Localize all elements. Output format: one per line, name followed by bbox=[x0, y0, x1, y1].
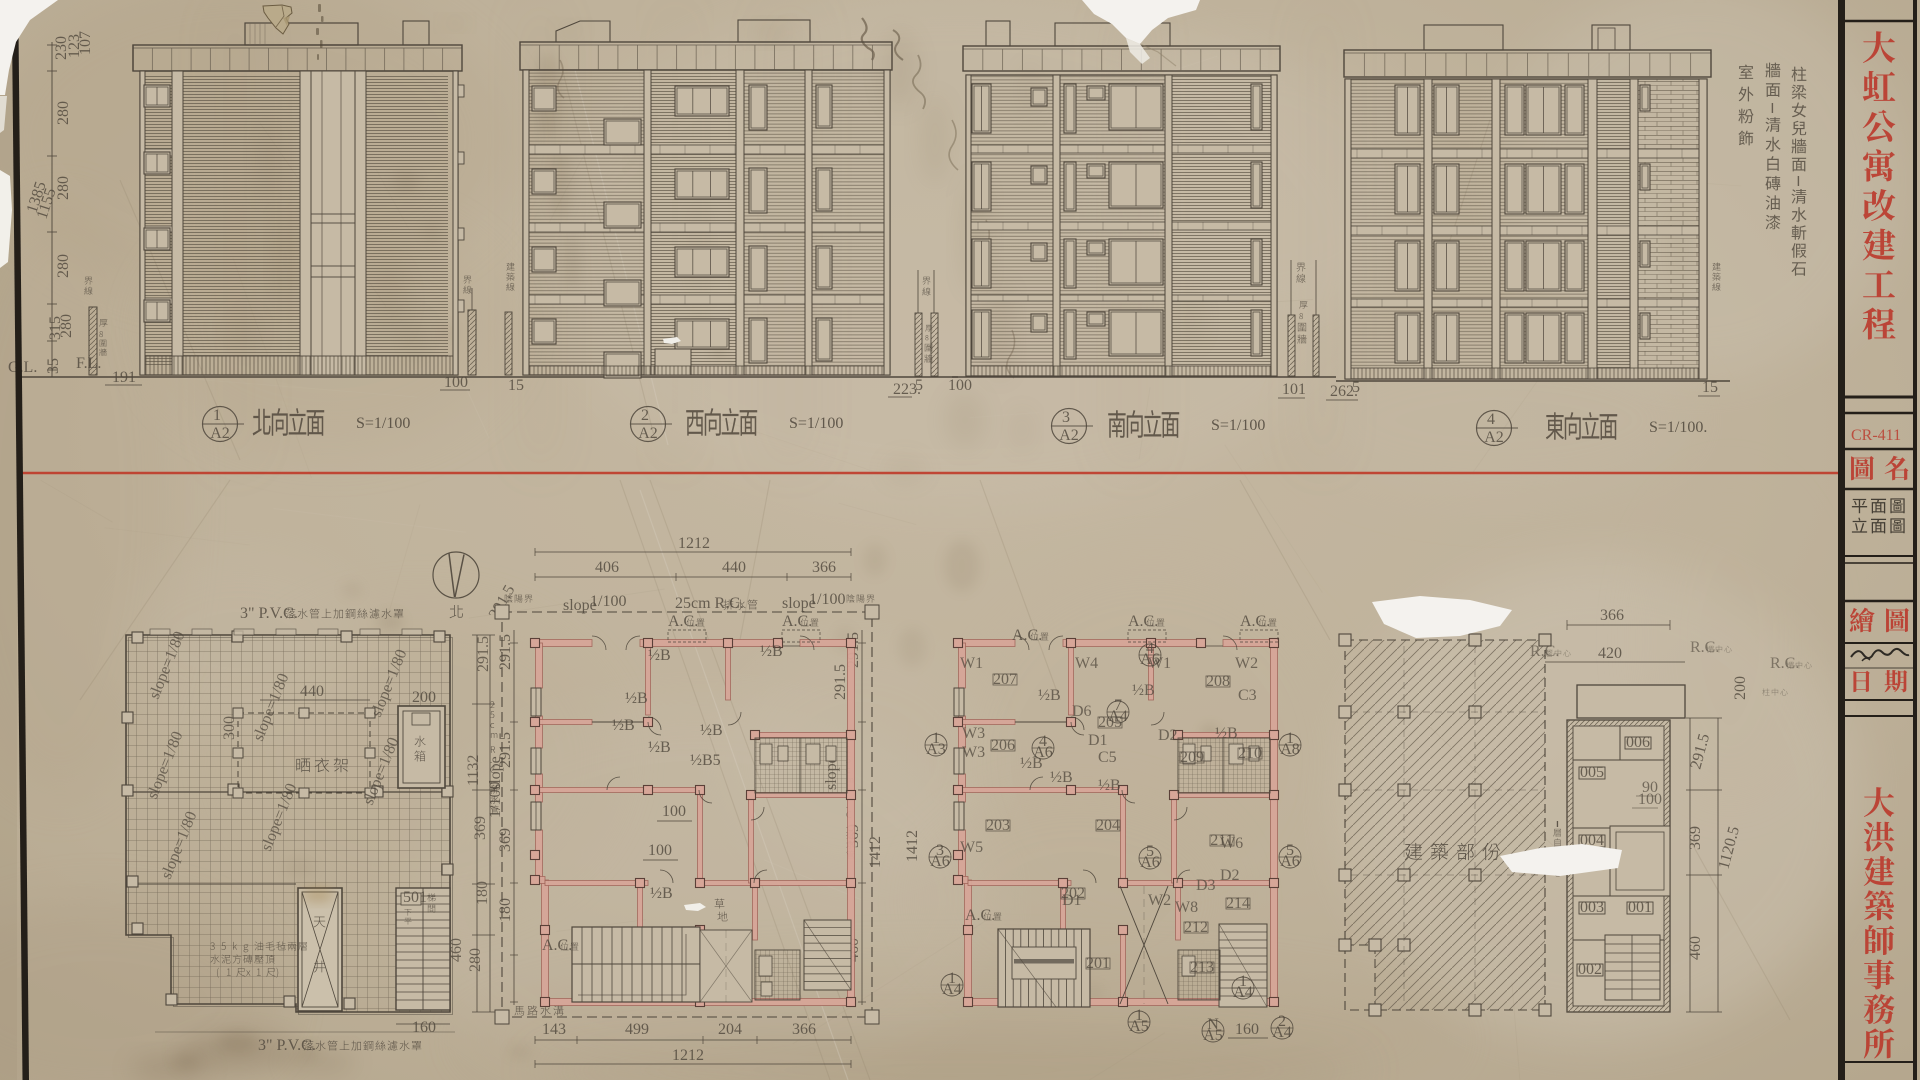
svg-text:1: 1 bbox=[213, 407, 221, 424]
svg-text:280: 280 bbox=[467, 948, 484, 972]
svg-text:180: 180 bbox=[497, 898, 514, 922]
svg-text:143: 143 bbox=[542, 1021, 566, 1038]
svg-text:006: 006 bbox=[1626, 734, 1650, 751]
svg-text:A2: A2 bbox=[1059, 427, 1079, 444]
svg-text:100: 100 bbox=[444, 374, 468, 391]
svg-text:107: 107 bbox=[77, 31, 94, 55]
svg-text:½B5: ½B5 bbox=[690, 752, 721, 769]
svg-text:D1: D1 bbox=[1062, 892, 1082, 909]
svg-text:A2: A2 bbox=[638, 425, 658, 442]
svg-text:200: 200 bbox=[1732, 676, 1749, 700]
svg-text:½B: ½B bbox=[1050, 769, 1073, 786]
svg-text:½B: ½B bbox=[648, 739, 671, 756]
svg-text:214: 214 bbox=[1226, 895, 1250, 912]
svg-text:291.5: 291.5 bbox=[497, 634, 514, 670]
svg-text:1212: 1212 bbox=[672, 1047, 704, 1064]
svg-text:W2: W2 bbox=[1235, 655, 1258, 672]
svg-text:420: 420 bbox=[1598, 645, 1622, 662]
svg-text:D2: D2 bbox=[1220, 867, 1240, 884]
svg-text:½B: ½B bbox=[1132, 682, 1155, 699]
svg-text:½B: ½B bbox=[650, 885, 673, 902]
svg-text:A3: A3 bbox=[926, 741, 946, 758]
svg-text:280: 280 bbox=[55, 254, 72, 278]
svg-text:1412: 1412 bbox=[867, 836, 884, 868]
svg-text:280: 280 bbox=[58, 314, 75, 338]
svg-text:207: 207 bbox=[993, 671, 1017, 688]
svg-text:CR-411: CR-411 bbox=[1851, 427, 1901, 444]
svg-text:A.C.: A.C. bbox=[782, 613, 812, 630]
svg-text:C3: C3 bbox=[1238, 687, 1257, 704]
svg-text:366: 366 bbox=[792, 1021, 816, 1038]
svg-text:A5: A5 bbox=[1129, 1018, 1149, 1035]
svg-text:½B: ½B bbox=[1038, 687, 1061, 704]
svg-text:A.C.: A.C. bbox=[1240, 613, 1270, 630]
svg-text:203: 203 bbox=[986, 817, 1010, 834]
svg-text:G.L.: G.L. bbox=[8, 359, 37, 376]
svg-text:180: 180 bbox=[474, 881, 491, 905]
svg-text:R.C.: R.C. bbox=[1690, 639, 1719, 656]
svg-text:101: 101 bbox=[1282, 381, 1306, 398]
svg-text:A.C.: A.C. bbox=[668, 613, 698, 630]
svg-text:D3: D3 bbox=[1196, 877, 1216, 894]
svg-text:501: 501 bbox=[403, 889, 427, 906]
svg-text:201: 201 bbox=[1086, 955, 1110, 972]
svg-text:W1: W1 bbox=[1148, 655, 1171, 672]
svg-text:A8: A8 bbox=[1280, 741, 1300, 758]
svg-text:W8: W8 bbox=[1175, 899, 1198, 916]
svg-text:1212: 1212 bbox=[678, 535, 710, 552]
svg-text:R.C.: R.C. bbox=[1770, 655, 1799, 672]
svg-text:A.C.: A.C. bbox=[542, 937, 572, 954]
svg-text:369: 369 bbox=[497, 828, 514, 852]
svg-text:213: 213 bbox=[1190, 959, 1214, 976]
svg-text:C5: C5 bbox=[1098, 749, 1117, 766]
svg-text:406: 406 bbox=[595, 559, 619, 576]
svg-text:3: 3 bbox=[1062, 409, 1070, 426]
svg-text:291.5: 291.5 bbox=[475, 636, 492, 672]
svg-text:003: 003 bbox=[1580, 899, 1604, 916]
svg-text:440: 440 bbox=[300, 683, 324, 700]
svg-text:369: 369 bbox=[472, 816, 489, 840]
svg-text:160: 160 bbox=[1235, 1021, 1259, 1038]
svg-text:5: 5 bbox=[915, 377, 923, 394]
svg-text:W5: W5 bbox=[960, 839, 983, 856]
svg-text:W2: W2 bbox=[1148, 892, 1171, 909]
svg-text:1132: 1132 bbox=[465, 755, 482, 786]
svg-text:A.C.: A.C. bbox=[965, 907, 995, 924]
svg-text:A4: A4 bbox=[1233, 984, 1253, 1001]
svg-text:W3: W3 bbox=[962, 725, 985, 742]
svg-text:A4: A4 bbox=[1108, 708, 1128, 725]
svg-text:W3: W3 bbox=[962, 744, 985, 761]
svg-text:A6: A6 bbox=[1280, 853, 1300, 870]
svg-text:160: 160 bbox=[412, 1019, 436, 1036]
svg-text:½B: ½B bbox=[648, 647, 671, 664]
svg-text:D1: D1 bbox=[1088, 732, 1108, 749]
svg-text:369: 369 bbox=[1687, 826, 1704, 850]
svg-text:½B: ½B bbox=[1020, 755, 1043, 772]
svg-text:300: 300 bbox=[221, 716, 238, 740]
svg-text:200: 200 bbox=[412, 689, 436, 706]
svg-text:W6: W6 bbox=[1220, 835, 1243, 852]
svg-text:½B: ½B bbox=[625, 690, 648, 707]
svg-text:100: 100 bbox=[1638, 791, 1662, 808]
svg-text:A.C.: A.C. bbox=[1128, 613, 1158, 630]
svg-text:366: 366 bbox=[812, 559, 836, 576]
svg-text:½B: ½B bbox=[700, 722, 723, 739]
svg-text:4: 4 bbox=[1487, 411, 1495, 428]
svg-text:15: 15 bbox=[508, 377, 524, 394]
svg-text:212: 212 bbox=[1184, 919, 1208, 936]
svg-text:½B: ½B bbox=[612, 717, 635, 734]
svg-text:204: 204 bbox=[718, 1021, 742, 1038]
svg-text:D6: D6 bbox=[1072, 703, 1092, 720]
svg-text:3" P.V.C.: 3" P.V.C. bbox=[240, 605, 298, 622]
svg-text:204: 204 bbox=[1096, 817, 1120, 834]
svg-text:460: 460 bbox=[1687, 936, 1704, 960]
svg-text:S=1/100: S=1/100 bbox=[356, 415, 410, 432]
svg-text:35: 35 bbox=[45, 358, 62, 374]
svg-text:S=1/100.: S=1/100. bbox=[1649, 419, 1707, 436]
svg-text:A2: A2 bbox=[1484, 429, 1504, 446]
svg-text:100: 100 bbox=[662, 803, 686, 820]
svg-text:100: 100 bbox=[648, 842, 672, 859]
svg-text:005: 005 bbox=[1580, 764, 1604, 781]
svg-text:W1: W1 bbox=[960, 655, 983, 672]
svg-text:440: 440 bbox=[722, 559, 746, 576]
svg-text:A4: A4 bbox=[942, 981, 962, 998]
svg-text:S=1/100: S=1/100 bbox=[789, 415, 843, 432]
svg-text:100: 100 bbox=[948, 377, 972, 394]
svg-text:191: 191 bbox=[112, 369, 136, 386]
svg-text:291.5: 291.5 bbox=[832, 664, 849, 700]
svg-text:1/100: 1/100 bbox=[809, 591, 845, 608]
svg-text:A5: A5 bbox=[1203, 1027, 1223, 1044]
svg-text:D2: D2 bbox=[1158, 727, 1178, 744]
svg-text:25cm R.C.: 25cm R.C. bbox=[675, 595, 744, 612]
svg-text:F.L.: F.L. bbox=[76, 355, 101, 372]
svg-text:002: 002 bbox=[1578, 961, 1602, 978]
svg-text:001: 001 bbox=[1628, 899, 1652, 916]
svg-text:1/100: 1/100 bbox=[487, 782, 504, 818]
svg-text:A6: A6 bbox=[1140, 854, 1160, 871]
svg-text:209: 209 bbox=[1180, 749, 1204, 766]
svg-text:1412: 1412 bbox=[904, 830, 921, 862]
svg-text:366: 366 bbox=[1600, 607, 1624, 624]
svg-text:½B: ½B bbox=[1215, 725, 1238, 742]
svg-text:460: 460 bbox=[448, 938, 465, 962]
svg-text:A4: A4 bbox=[1272, 1024, 1292, 1041]
svg-text:A6: A6 bbox=[930, 853, 950, 870]
svg-text:½B: ½B bbox=[1098, 777, 1121, 794]
svg-text:A.C.: A.C. bbox=[1012, 627, 1042, 644]
svg-text:206: 206 bbox=[991, 737, 1015, 754]
svg-text:A2: A2 bbox=[210, 425, 230, 442]
svg-text:S=1/100: S=1/100 bbox=[1211, 417, 1265, 434]
svg-text:499: 499 bbox=[625, 1021, 649, 1038]
svg-text:½B: ½B bbox=[760, 643, 783, 660]
svg-text:280: 280 bbox=[55, 101, 72, 125]
svg-text:210: 210 bbox=[1238, 745, 1262, 762]
svg-text:15: 15 bbox=[1702, 379, 1718, 396]
svg-text:W4: W4 bbox=[1075, 655, 1098, 672]
svg-text:2: 2 bbox=[641, 407, 649, 424]
svg-text:1/100: 1/100 bbox=[590, 593, 626, 610]
svg-text:3" P.V.C.: 3" P.V.C. bbox=[258, 1037, 316, 1054]
svg-text:208: 208 bbox=[1206, 673, 1230, 690]
